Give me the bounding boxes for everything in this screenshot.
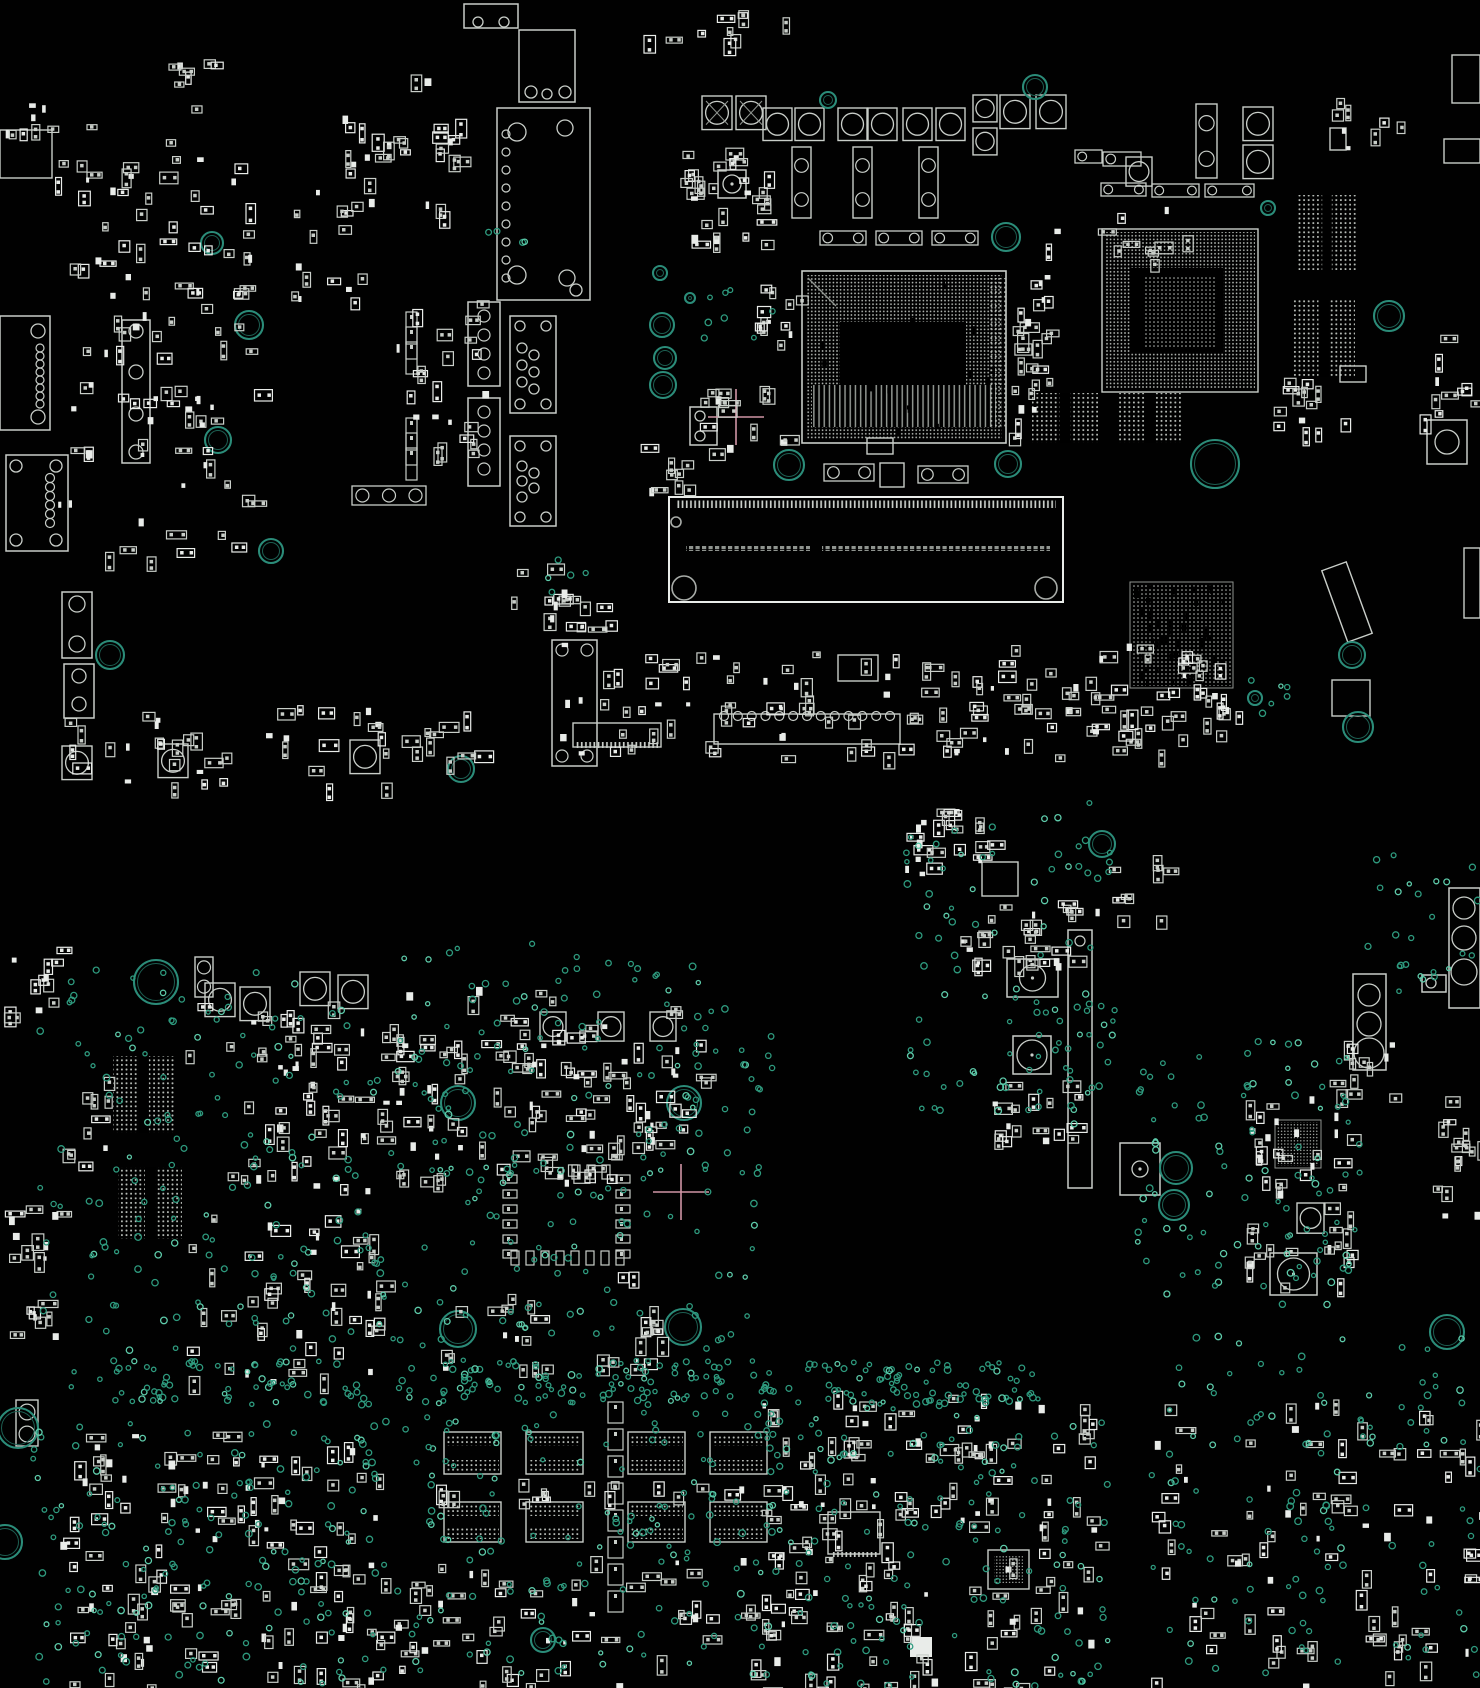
cpu-bga-footprint[interactable] — [802, 271, 1006, 443]
memory-grid-footprint[interactable] — [1118, 393, 1182, 443]
pcb-boardview-canvas[interactable] — [0, 0, 1480, 1688]
memory-grid-footprint[interactable] — [118, 1167, 182, 1239]
memory-grid-footprint[interactable] — [1297, 195, 1357, 270]
memory-grid-footprint[interactable] — [1032, 393, 1098, 443]
boardview-viewport[interactable] — [0, 0, 1480, 1688]
memory-grid-footprint[interactable] — [988, 278, 1006, 428]
gpu-bga-footprint[interactable] — [1102, 229, 1258, 392]
